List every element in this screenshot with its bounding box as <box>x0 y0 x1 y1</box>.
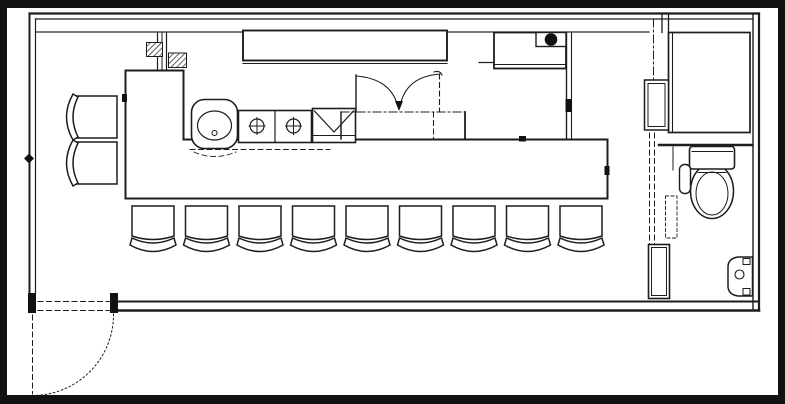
bar-stool <box>398 206 444 252</box>
back-counter <box>243 31 447 64</box>
flush-handle <box>680 165 691 194</box>
hatch-block <box>147 43 163 57</box>
counter-tick <box>122 94 127 102</box>
counter-tick <box>519 136 526 142</box>
burner-dot <box>545 33 558 46</box>
bar-stool <box>130 206 176 252</box>
toilet-tank <box>690 147 735 170</box>
bar-stool <box>505 206 551 252</box>
side-chair <box>67 140 118 186</box>
floor-plan-drawing: restaurant-floor-plan <box>0 0 785 404</box>
counter-tick <box>605 166 610 175</box>
wall-tick <box>566 99 573 112</box>
floor-plan-page: restaurant-floor-plan <box>0 0 785 404</box>
vestibule-door-panel <box>645 80 669 130</box>
wc-entry-cabinet <box>649 245 670 299</box>
side-chair <box>67 94 118 140</box>
bar-stool <box>558 206 604 252</box>
hatch-block <box>169 53 187 68</box>
bar-stool <box>184 206 230 252</box>
bar-stool <box>291 206 337 252</box>
bar-stool <box>344 206 390 252</box>
door-jamb <box>110 293 118 313</box>
drainboard-unit <box>313 109 356 143</box>
bar-stool <box>451 206 497 252</box>
wc-wall-basin <box>728 257 753 296</box>
door-jamb <box>28 293 36 313</box>
bar-stool <box>237 206 283 252</box>
